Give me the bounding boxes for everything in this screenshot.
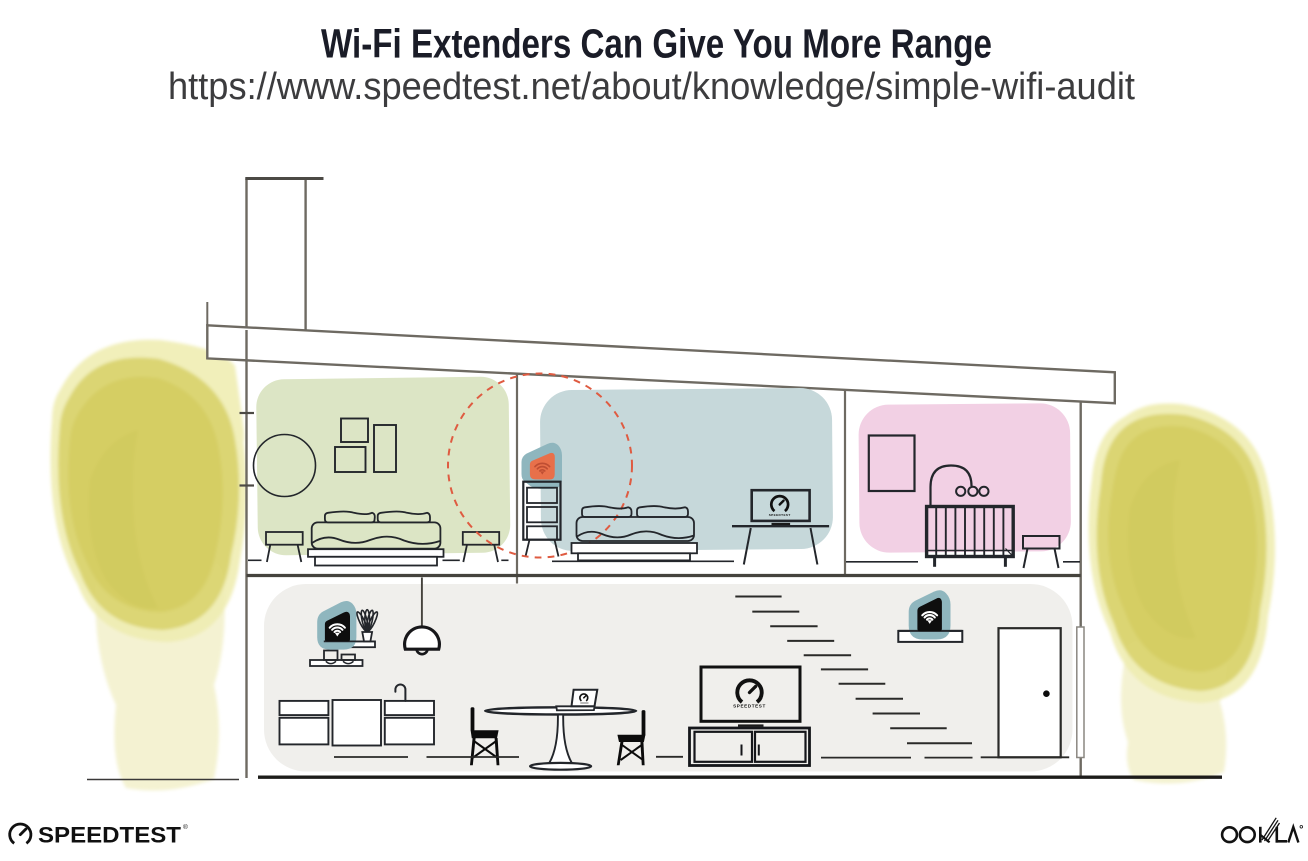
svg-text:SPEEDTEST: SPEEDTEST bbox=[38, 823, 182, 848]
svg-text:SPEEDTEST: SPEEDTEST bbox=[769, 513, 791, 517]
svg-text:Wi-Fi Extenders Can Give You M: Wi-Fi Extenders Can Give You More Range bbox=[321, 21, 992, 67]
svg-text:®: ® bbox=[183, 823, 188, 831]
svg-text:SPEEDTEST: SPEEDTEST bbox=[733, 704, 766, 709]
svg-text:https://www.speedtest.net/abou: https://www.speedtest.net/about/knowledg… bbox=[168, 66, 1135, 108]
